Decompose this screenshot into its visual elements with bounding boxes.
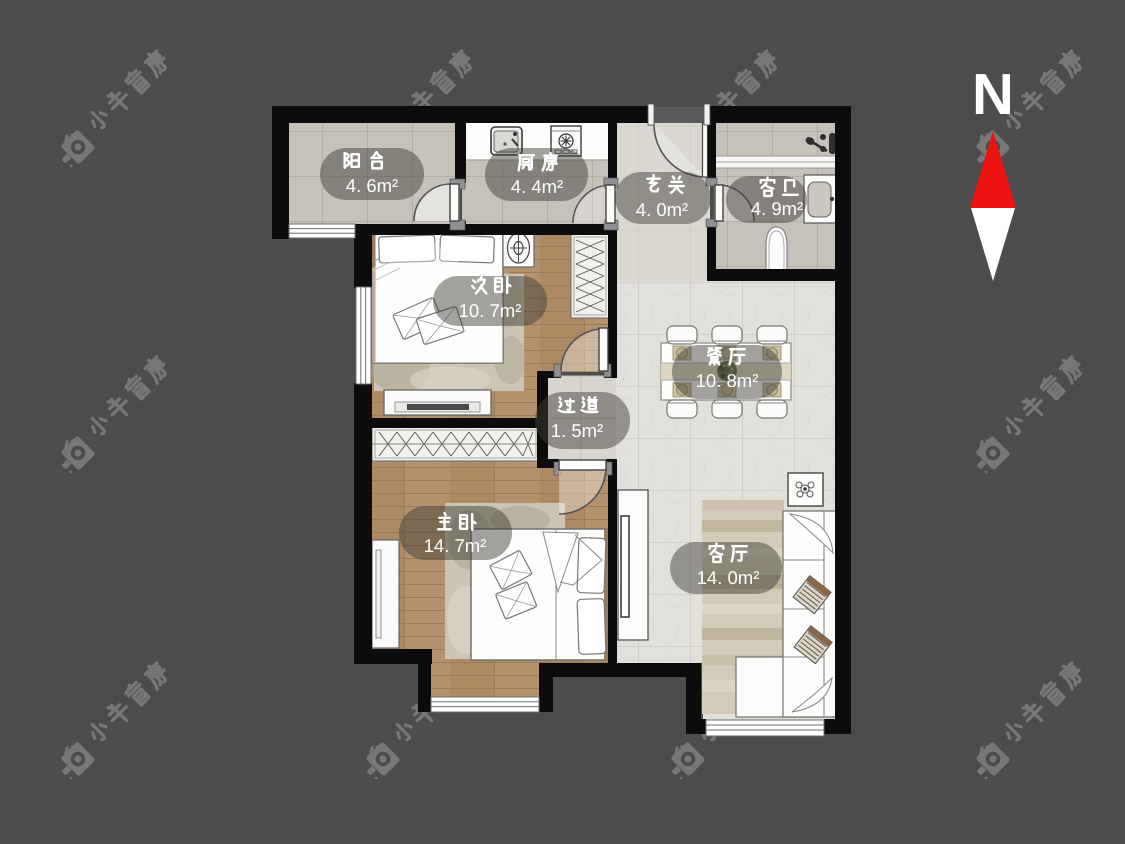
svg-text:14. 7m²: 14. 7m² xyxy=(424,535,487,556)
svg-text:4. 0m²: 4. 0m² xyxy=(636,199,688,220)
svg-text:14. 0m²: 14. 0m² xyxy=(697,567,760,588)
svg-text:4. 6m²: 4. 6m² xyxy=(346,175,398,196)
svg-text:10. 7m²: 10. 7m² xyxy=(459,300,522,321)
svg-text:1. 5m²: 1. 5m² xyxy=(551,420,603,441)
svg-text:4. 9m²: 4. 9m² xyxy=(751,198,803,219)
svg-text:10. 8m²: 10. 8m² xyxy=(696,370,759,391)
svg-text:4. 4m²: 4. 4m² xyxy=(511,176,563,197)
svg-text:N: N xyxy=(972,62,1014,127)
